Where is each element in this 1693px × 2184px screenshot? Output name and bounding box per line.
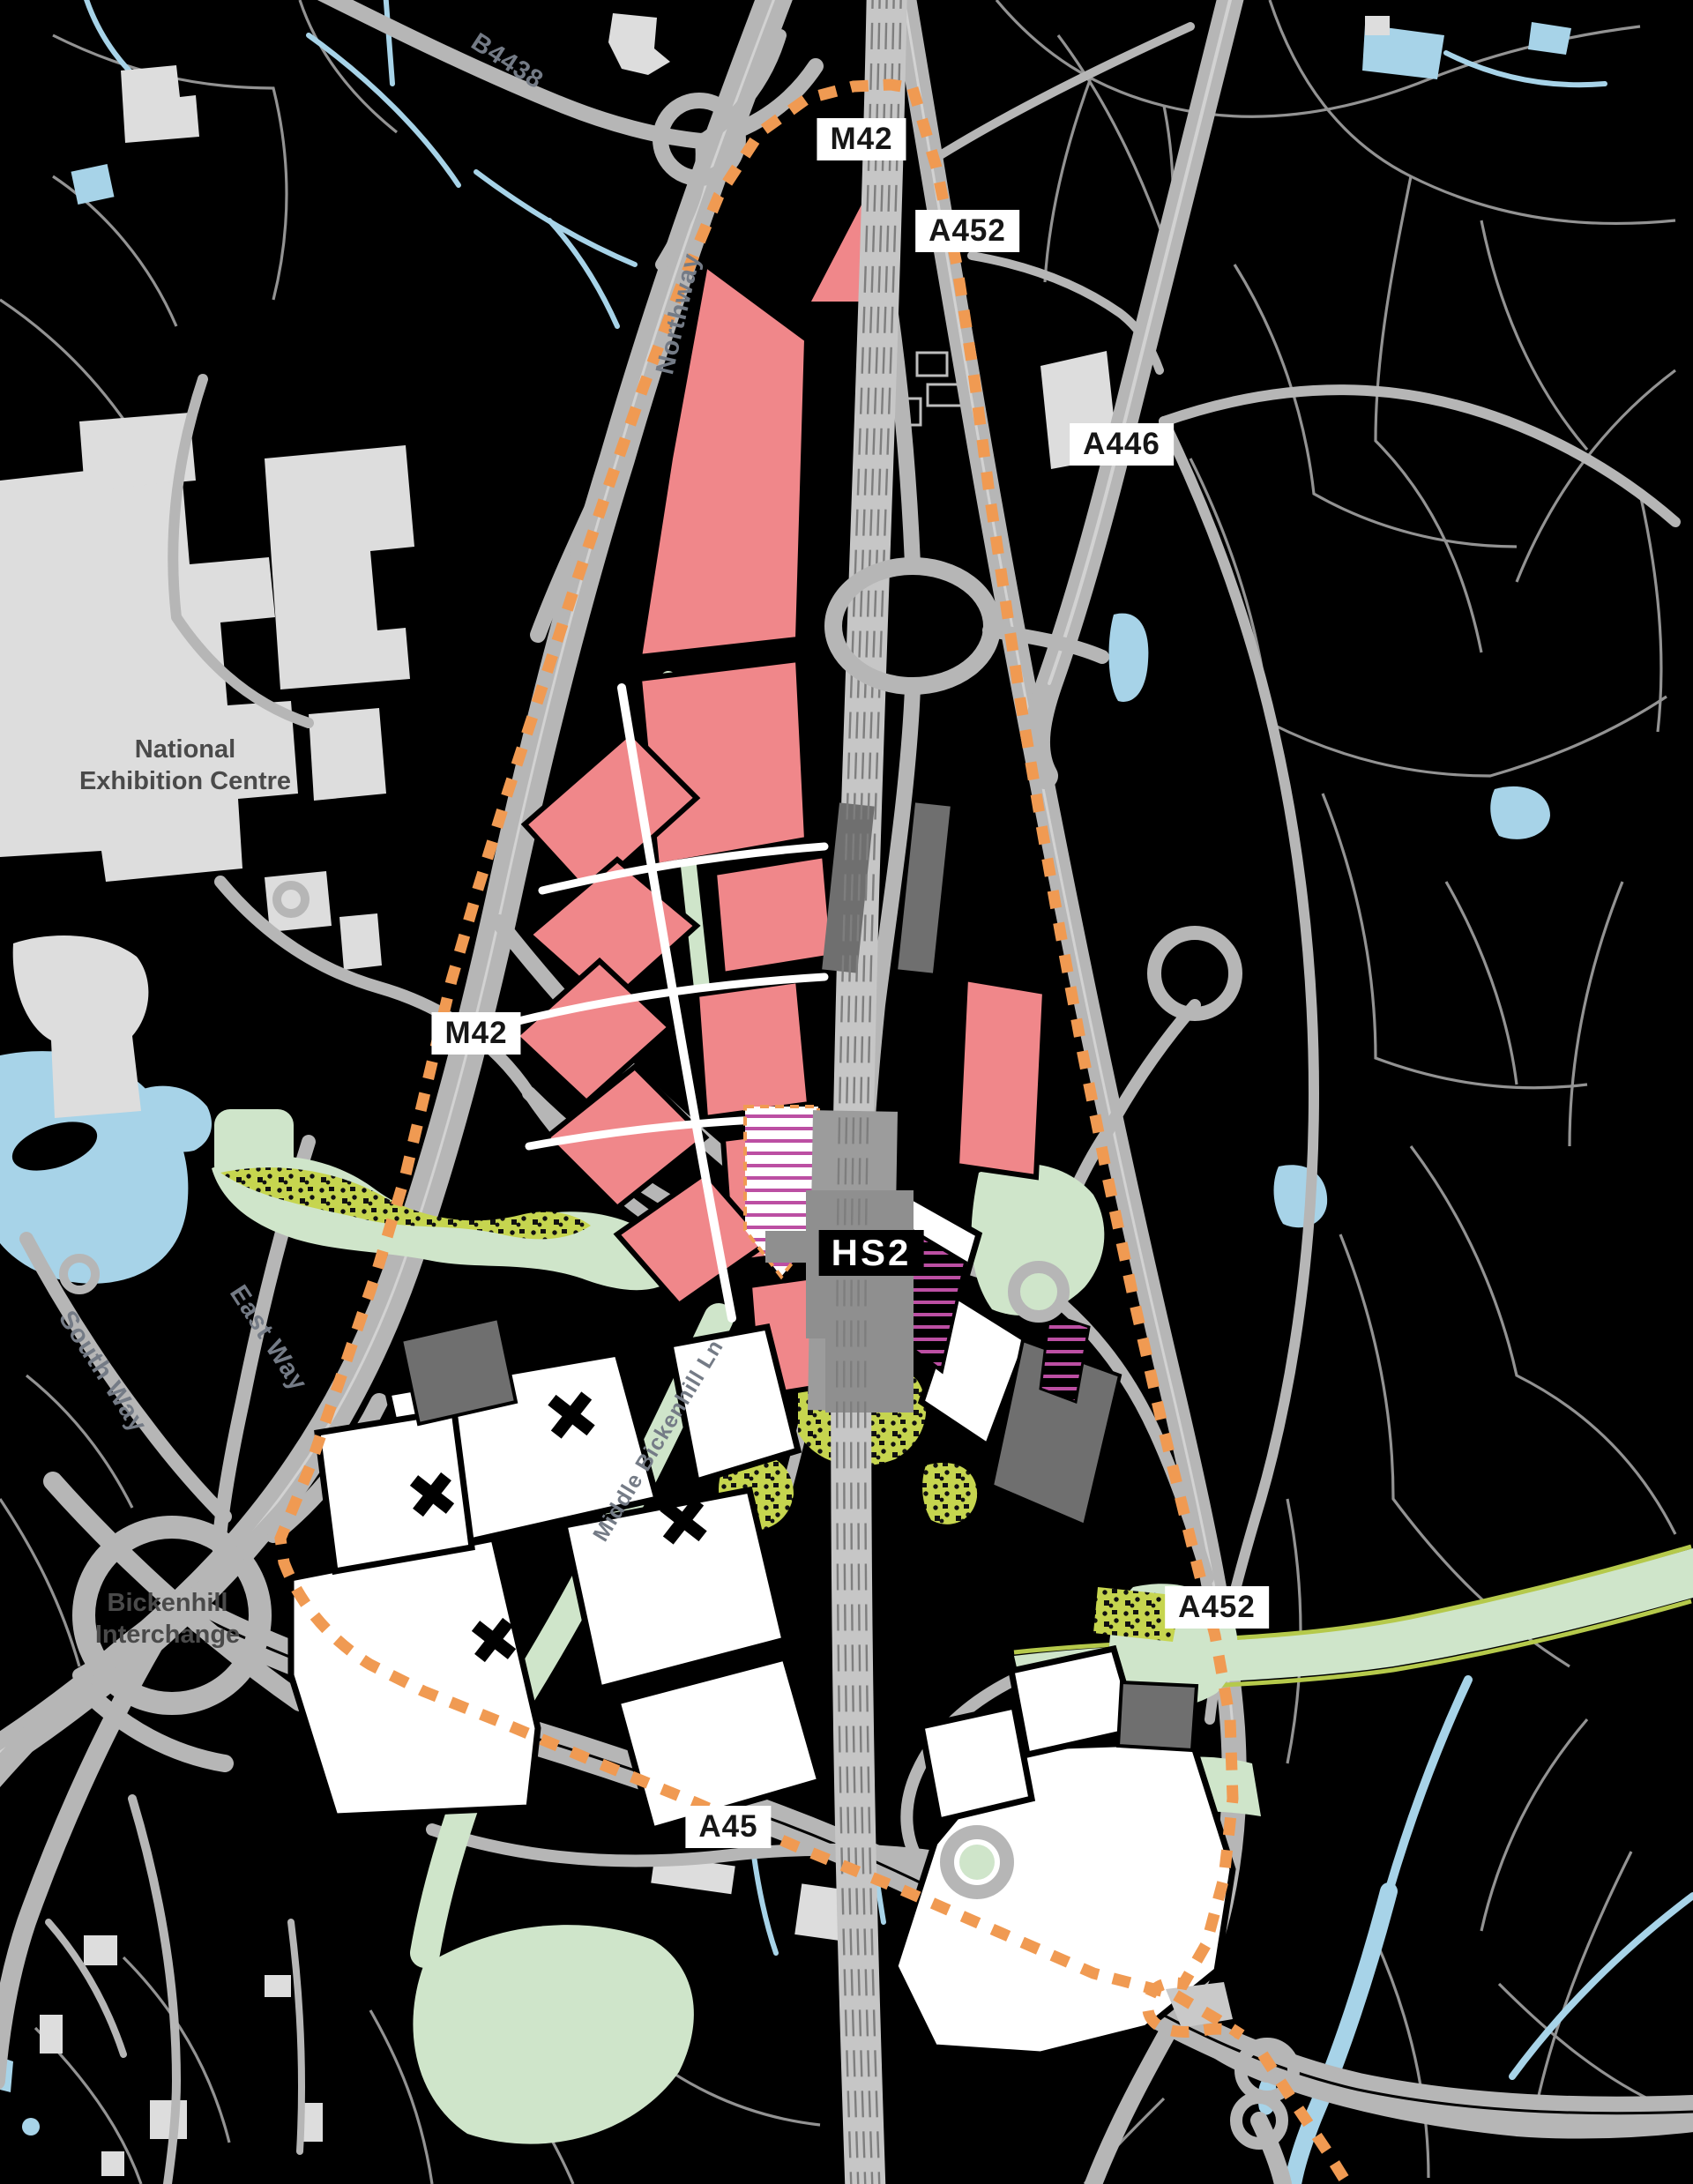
nec-label-line1: National	[79, 734, 291, 765]
badge-m42-west: M42	[431, 1012, 520, 1055]
badge-a446: A446	[1070, 423, 1174, 466]
badge-a452-north: A452	[915, 210, 1019, 252]
nec-label-line2: Exhibition Centre	[79, 765, 291, 797]
badge-a45: A45	[685, 1806, 771, 1848]
badge-a452-east: A452	[1165, 1586, 1269, 1629]
hs2-station-label: HS2	[819, 1230, 924, 1276]
badge-m42-top: M42	[817, 118, 906, 160]
nec-label: National Exhibition Centre	[79, 734, 291, 798]
masterplan-map: M42 A452 A446 M42 A452 A45 HS2 National …	[0, 0, 1693, 2184]
pink-parcel-east-of-rail	[957, 979, 1045, 1177]
map-canvas	[0, 0, 1693, 2184]
bickenhill-interchange-label: Bickenhill Interchange	[95, 1587, 240, 1651]
bickenhill-label-line1: Bickenhill	[95, 1587, 240, 1619]
bickenhill-label-line2: Interchange	[95, 1619, 240, 1651]
